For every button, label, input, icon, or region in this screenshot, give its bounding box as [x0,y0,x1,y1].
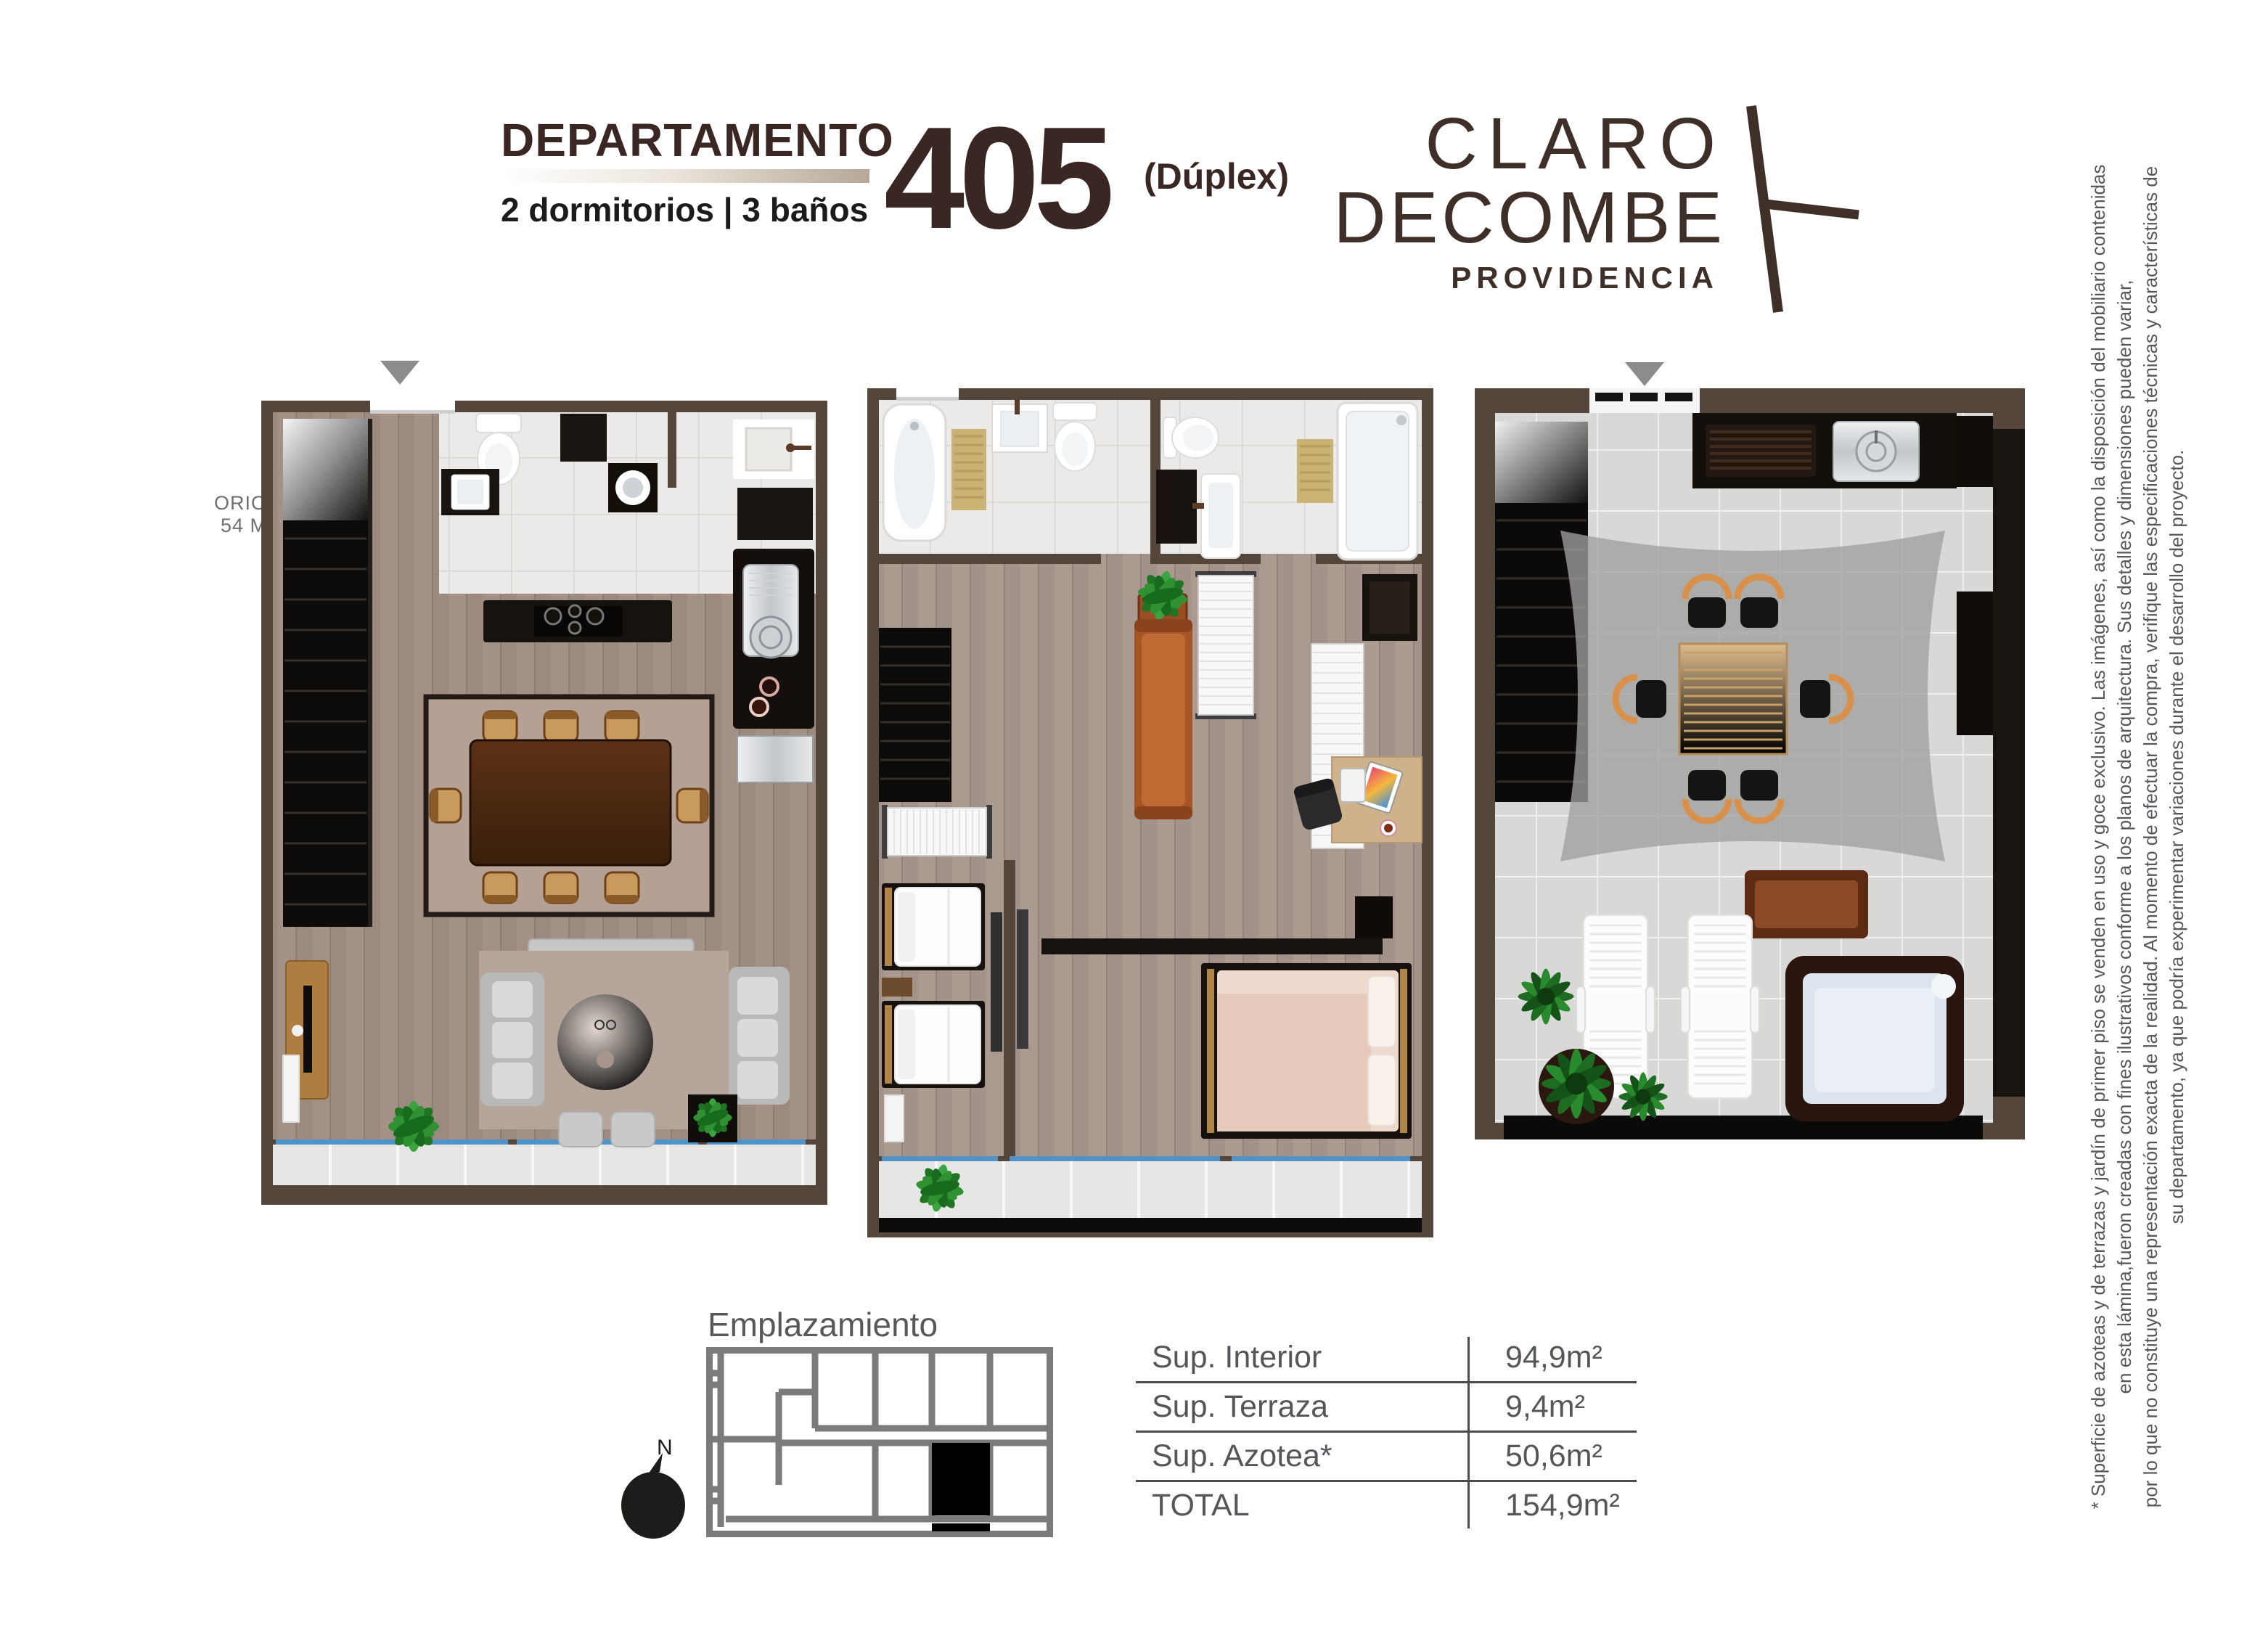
plan1-terrace [273,1139,816,1185]
brand-project-name: PROVIDENCIA [1451,263,1719,293]
site-plan-highlighted-unit [932,1443,990,1515]
clipped-room-label-line2: 54 M [181,515,267,537]
area-value: 9,4m² [1467,1389,1585,1425]
area-value: 94,9m² [1467,1340,1602,1375]
plan1-plant-2 [693,1098,732,1137]
legal-disclaimer: * Superficie de azoteas y de terrazas y … [2083,140,2192,1534]
clipped-room-label-line1: ORIO [181,492,267,515]
plan1-plant [388,1101,439,1152]
unit-number: 405 [884,106,1109,251]
plan3-sofa [1745,870,1868,938]
title-divider [501,169,869,183]
brand-name-line1: CLARO [1425,107,1726,180]
disclaimer-line4: su departamento, ya que podría experimen… [2163,140,2190,1534]
svg-text:N: N [657,1436,673,1460]
brochure-page: ORIO 54 M [0,0,2268,1633]
table-row: Sup. Terraza 9,4m² [1136,1381,1637,1431]
area-label: Sup. Interior [1136,1340,1467,1375]
table-row: Sup. Interior 94,9m² [1136,1334,1637,1381]
area-label: Sup. Terraza [1136,1389,1467,1425]
table-row: Sup. Azotea* 50,6m² [1136,1431,1637,1480]
brand-name-line2: DECOMBE [1333,181,1726,254]
floor-plan-level-2 [867,388,1433,1237]
plan2-divider-wall [1004,860,1015,1156]
area-label: Sup. Azotea* [1136,1438,1467,1474]
entry-arrow-icon [380,361,419,385]
north-compass-icon: N [612,1431,692,1540]
floor-plan-level-1 [261,401,827,1205]
disclaimer-line1: * Superficie de azoteas y de terrazas y … [2085,140,2111,1534]
areas-table: Sup. Interior 94,9m² Sup. Terraza 9,4m² … [1136,1334,1637,1531]
floor-plan-rooftop [1475,388,2025,1139]
clipped-room-label: ORIO 54 M [181,492,267,537]
area-label: TOTAL [1136,1488,1467,1523]
plan3-lounger-2 [1681,915,1759,1098]
page-subtitle: 2 dormitorios | 3 baños [501,190,868,229]
unit-type: (Dúplex) [1144,155,1289,197]
logo-mark-icon [1738,100,1869,318]
site-plan-diagram [706,1347,1053,1537]
plan3-bbq-counter [1692,413,1993,488]
site-plan-label: Emplazamiento [708,1305,938,1344]
plan1-stairs [283,419,372,927]
disclaimer-line2: en esta lámina,fueron creadas con fines … [2111,140,2137,1534]
disclaimer-line3: por lo que no constituye una representac… [2137,140,2163,1534]
plan2-stairs [879,628,951,802]
plan3-cabinet [1957,592,1993,735]
area-value: 154,9m² [1467,1488,1620,1523]
plan3-jacuzzi [1785,956,1964,1121]
page-title: DEPARTAMENTO [501,113,894,167]
table-row: TOTAL 154,9m² [1136,1480,1637,1529]
area-value: 50,6m² [1467,1438,1602,1474]
table-divider [1467,1337,1470,1528]
plan1-dining-set [426,697,712,914]
entry-arrow-icon [1625,362,1664,386]
